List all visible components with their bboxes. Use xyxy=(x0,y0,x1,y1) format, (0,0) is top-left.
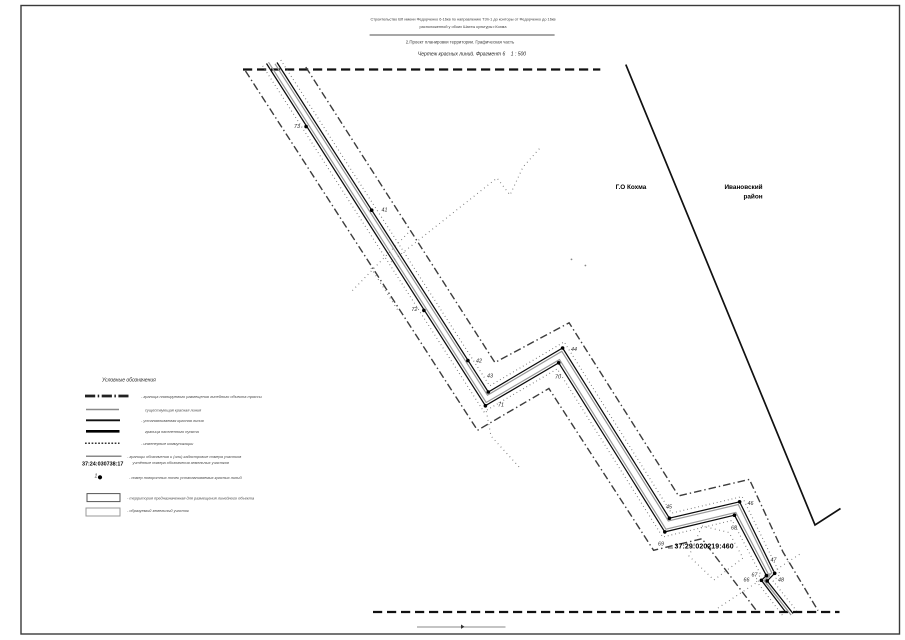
svg-text:Строительство ВЛ имени Федорче: Строительство ВЛ имени Федорченко 6-16кв… xyxy=(370,18,555,22)
svg-text:- номер поворотных точек уста: - номер поворотных точек устанавливаемых… xyxy=(129,475,242,480)
svg-text:2.Проект планировки территории: 2.Проект планировки территории. Графичес… xyxy=(406,40,515,45)
svg-text:- образуемый земельный участок: - образуемый земельный участок xyxy=(127,508,189,513)
svg-text:68: 68 xyxy=(731,526,737,532)
svg-text:Условные обозначения: Условные обозначения xyxy=(102,378,156,384)
svg-text:расположенной у обоих Шахты ку: расположенной у обоих Шахты культуры г.К… xyxy=(420,25,508,29)
svg-text:46: 46 xyxy=(748,501,754,507)
svg-text:37:29:020219:460: 37:29:020219:460 xyxy=(675,544,734,551)
svg-text:- территория предназначенная д: - территория предназначенная для размеще… xyxy=(127,495,255,500)
svg-text:69: 69 xyxy=(658,542,664,548)
svg-text:район: район xyxy=(743,193,762,201)
svg-text:Ивановский: Ивановский xyxy=(724,183,762,191)
svg-text:48: 48 xyxy=(778,578,784,584)
svg-text:44: 44 xyxy=(571,347,577,353)
svg-text:45: 45 xyxy=(666,505,672,511)
svg-text:67: 67 xyxy=(752,573,759,579)
svg-text:учтённые номера обозначения зе: учтённые номера обозначения земельных уч… xyxy=(132,460,229,465)
svg-text:Г.О Кохма: Г.О Кохма xyxy=(616,184,647,191)
svg-text:70: 70 xyxy=(555,375,561,381)
svg-text:41: 41 xyxy=(382,208,388,214)
svg-text:47: 47 xyxy=(771,558,778,564)
svg-text:- инженерные коммуникации: - инженерные коммуникации xyxy=(141,441,194,446)
svg-text:существующая красная линия: существующая красная линия xyxy=(145,407,201,412)
svg-text:43: 43 xyxy=(487,374,493,380)
svg-text:- границы обозначения и (или): - границы обозначения и (или) кадастровы… xyxy=(127,454,241,459)
svg-text:71: 71 xyxy=(498,403,504,409)
svg-text:- устанавливаемая красная лини: - устанавливаемая красная линия xyxy=(141,418,204,423)
svg-text:37:24:030738:17: 37:24:030738:17 xyxy=(82,462,123,468)
svg-text:42: 42 xyxy=(476,359,482,365)
svg-text:66: 66 xyxy=(744,578,750,584)
svg-text:73: 73 xyxy=(294,124,300,130)
svg-text:Чертеж красных линий. Фрагмент: Чертеж красных линий. Фрагмент 6 1 : 500 xyxy=(418,50,526,57)
svg-text:- граница планируемого размеще: - граница планируемого размещения линейн… xyxy=(141,394,262,399)
svg-text:72: 72 xyxy=(412,307,418,313)
svg-text:граница населенного пункта: граница населенного пункта xyxy=(145,429,200,434)
svg-text:1: 1 xyxy=(95,474,98,480)
